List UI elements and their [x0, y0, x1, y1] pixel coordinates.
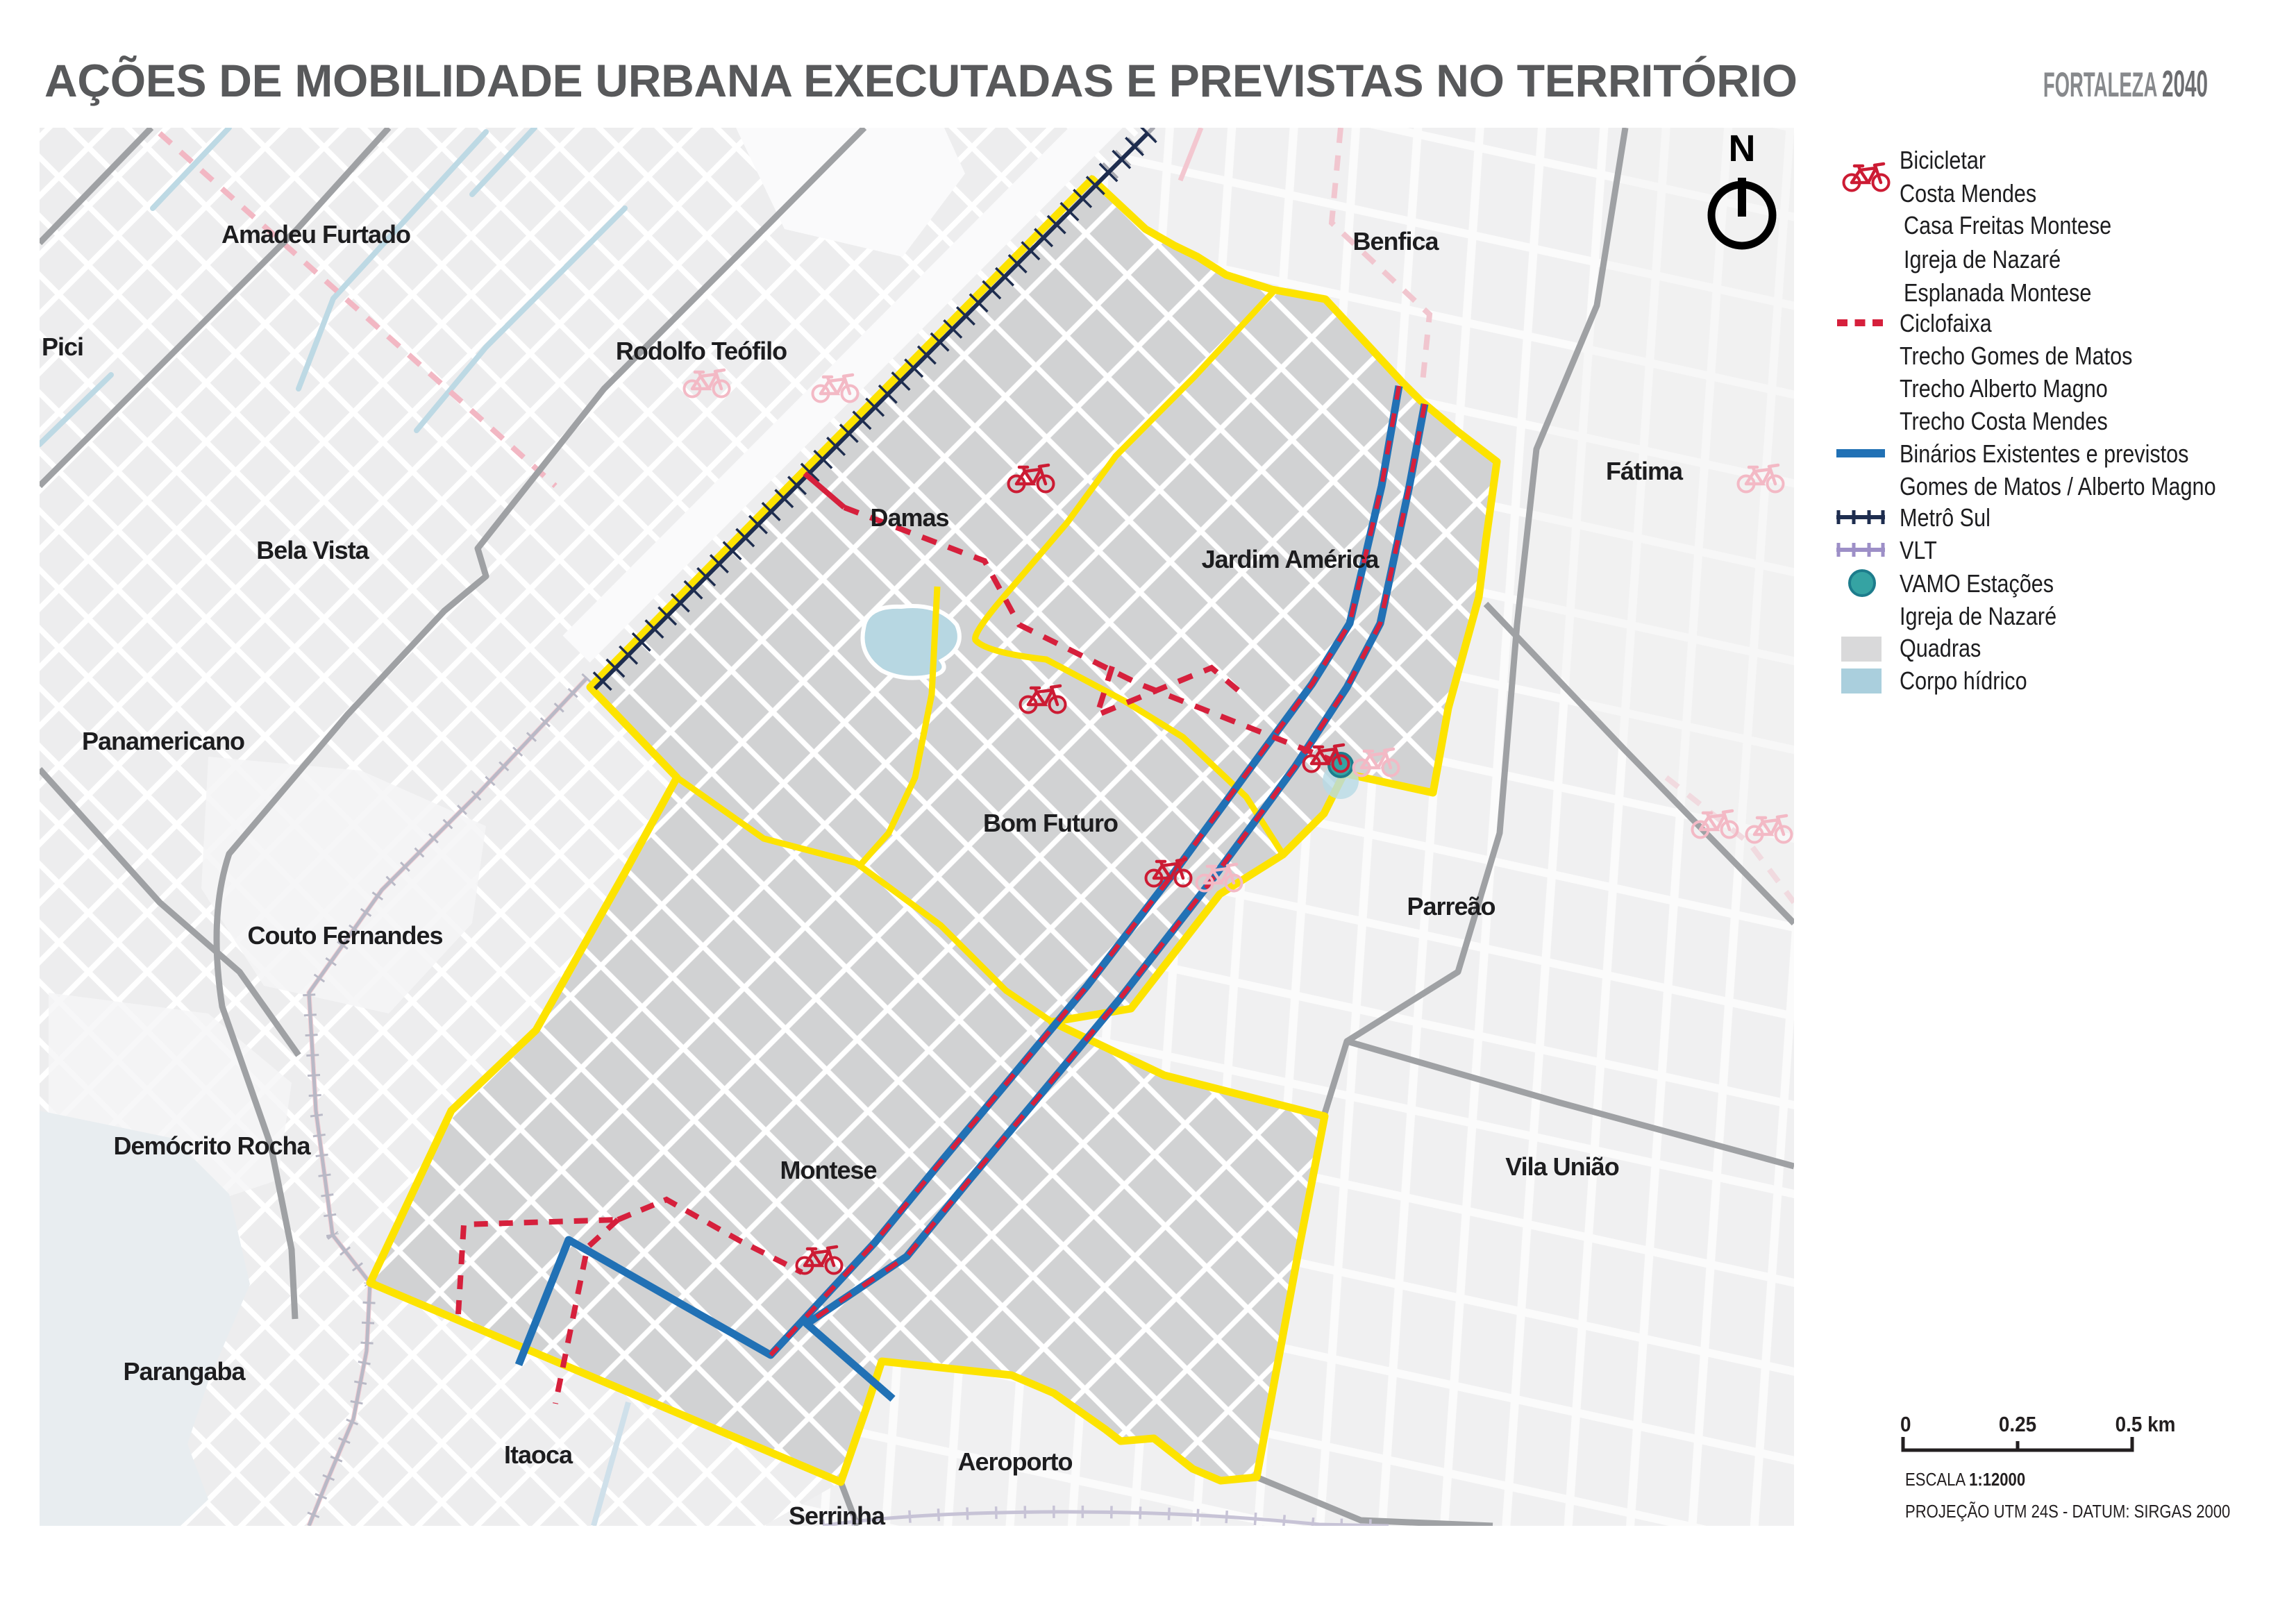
- svg-text:Amadeu Furtado: Amadeu Furtado: [221, 220, 410, 249]
- svg-text:0.5 km: 0.5 km: [2115, 1413, 2176, 1437]
- svg-text:Trecho Gomes de Matos: Trecho Gomes de Matos: [1900, 343, 2132, 371]
- svg-text:Rodolfo Teófilo: Rodolfo Teófilo: [616, 337, 787, 365]
- svg-text:ESCALA 1:12000: ESCALA 1:12000: [1905, 1470, 2025, 1490]
- svg-text:Serrinha: Serrinha: [789, 1502, 886, 1530]
- svg-text:Panamericano: Panamericano: [82, 727, 244, 755]
- svg-text:Parangaba: Parangaba: [123, 1357, 246, 1386]
- svg-text:Esplanada Montese: Esplanada Montese: [1904, 280, 2091, 308]
- svg-text:Pici: Pici: [42, 333, 83, 361]
- svg-text:Igreja de Nazaré: Igreja de Nazaré: [1900, 603, 2056, 631]
- svg-text:Parreão: Parreão: [1407, 892, 1495, 920]
- svg-text:Itaoca: Itaoca: [504, 1440, 573, 1469]
- svg-text:Bicicletar: Bicicletar: [1900, 147, 1986, 175]
- svg-text:Benfica: Benfica: [1352, 227, 1439, 255]
- svg-text:Damas: Damas: [870, 503, 948, 532]
- svg-text:Montese: Montese: [780, 1156, 876, 1184]
- svg-text:Ciclofaixa: Ciclofaixa: [1900, 310, 1992, 338]
- svg-text:Bela Vista: Bela Vista: [256, 536, 369, 564]
- svg-text:N: N: [1729, 128, 1756, 169]
- svg-text:Vila União: Vila União: [1505, 1152, 1618, 1181]
- svg-text:AÇÕES DE MOBILIDADE URBANA EXE: AÇÕES DE MOBILIDADE URBANA EXECUTADAS E …: [44, 55, 1798, 106]
- svg-text:Costa Mendes: Costa Mendes: [1900, 180, 2036, 208]
- svg-text:PROJEÇÃO UTM 24S - DATUM: SIRG: PROJEÇÃO UTM 24S - DATUM: SIRGAS 2000: [1905, 1502, 2230, 1522]
- svg-text:Binários Existentes e previsto: Binários Existentes e previstos: [1900, 441, 2188, 469]
- svg-text:Corpo hídrico: Corpo hídrico: [1900, 668, 2027, 696]
- svg-text:FORTALEZA 2040: FORTALEZA 2040: [2043, 64, 2208, 105]
- svg-text:VAMO Estações: VAMO Estações: [1900, 571, 2054, 598]
- svg-text:Aeroporto: Aeroporto: [958, 1447, 1073, 1476]
- svg-text:Quadras: Quadras: [1900, 635, 1981, 663]
- svg-text:Igreja de Nazaré: Igreja de Nazaré: [1904, 246, 2061, 274]
- svg-text:Gomes de Matos / Alberto Magno: Gomes de Matos / Alberto Magno: [1900, 473, 2216, 501]
- svg-text:Fátima: Fátima: [1606, 457, 1684, 485]
- svg-text:0: 0: [1900, 1413, 1911, 1437]
- svg-text:Jardim América: Jardim América: [1202, 545, 1380, 573]
- svg-text:VLT: VLT: [1900, 537, 1937, 565]
- svg-text:0.25: 0.25: [1999, 1413, 2036, 1437]
- svg-text:Couto Fernandes: Couto Fernandes: [247, 921, 442, 950]
- svg-text:Casa Freitas Montese: Casa Freitas Montese: [1904, 212, 2111, 240]
- svg-text:Demócrito Rocha: Demócrito Rocha: [113, 1132, 311, 1160]
- svg-text:Trecho Costa Mendes: Trecho Costa Mendes: [1900, 408, 2108, 436]
- svg-text:Bom Futuro: Bom Futuro: [983, 809, 1118, 837]
- svg-text:Metrô Sul: Metrô Sul: [1900, 505, 1991, 532]
- svg-text:Trecho Alberto Magno: Trecho Alberto Magno: [1900, 376, 2108, 403]
